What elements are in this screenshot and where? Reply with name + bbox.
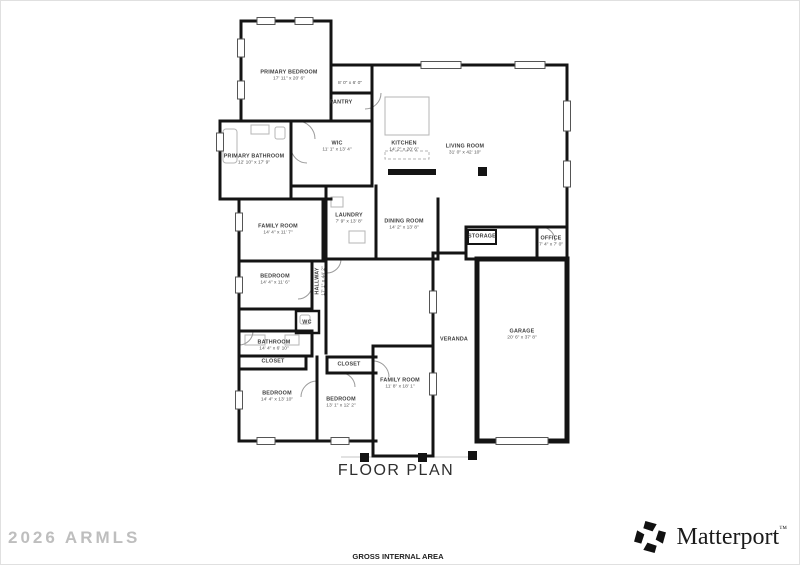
windows-layer [217, 18, 571, 445]
doors-layer [239, 93, 555, 397]
gross-internal-area-line: GROSS INTERNAL AREA [280, 552, 516, 561]
fixtures-layer [223, 97, 477, 457]
matterport-logo: Matterport™ [632, 519, 787, 555]
area-summary: GROSS INTERNAL AREA FLOOR PLAN 4,473 sq.… [280, 516, 516, 565]
floorplan-page: PRIMARY BEDROOM17' 11" x 20' 6"8' 0" x 6… [0, 0, 800, 565]
posts-layer [360, 167, 487, 462]
matterport-wordmark: Matterport [677, 524, 780, 551]
floorplan-drawing [1, 1, 800, 565]
armls-watermark: 2026 ARMLS [8, 528, 140, 548]
trademark-symbol: ™ [779, 524, 787, 533]
walls-layer [220, 21, 567, 456]
matterport-pinwheel-icon [632, 519, 668, 555]
plan-title: FLOOR PLAN [338, 462, 454, 480]
